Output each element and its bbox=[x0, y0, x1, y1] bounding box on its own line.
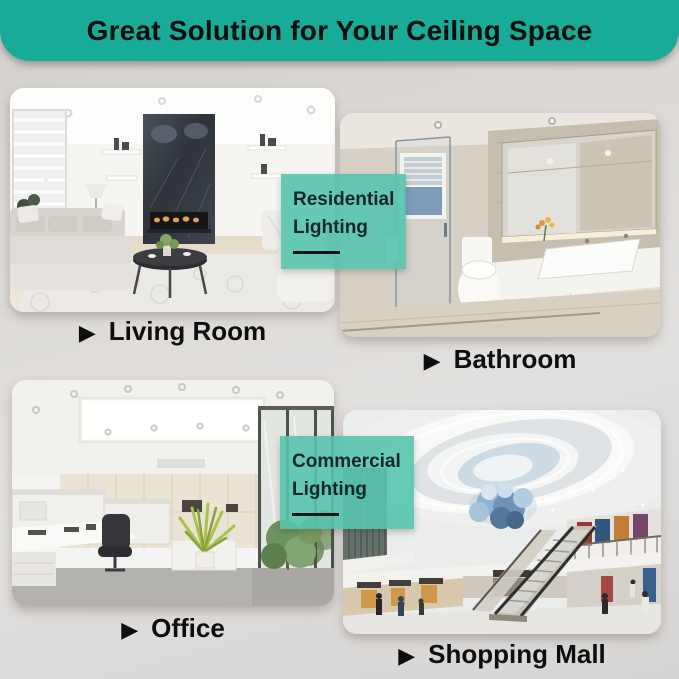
arrow-icon: ▶ bbox=[424, 350, 441, 372]
arrow-icon: ▶ bbox=[79, 322, 96, 344]
badge-text-line2: Lighting bbox=[293, 214, 406, 242]
arrow-icon: ▶ bbox=[121, 619, 138, 641]
fireplace-wall bbox=[143, 114, 215, 244]
residential-lighting-badge: Residential Lighting bbox=[281, 174, 406, 269]
badge-text-line1: Commercial bbox=[292, 448, 414, 476]
badge-underline bbox=[292, 513, 339, 516]
page-title: Great Solution for Your Ceiling Space bbox=[87, 15, 593, 47]
arrow-icon: ▶ bbox=[398, 645, 415, 667]
bathroom-caption: ▶ Bathroom bbox=[340, 344, 660, 375]
commercial-lighting-badge: Commercial Lighting bbox=[280, 436, 414, 529]
badge-underline bbox=[293, 251, 340, 254]
living-room-caption: ▶ Living Room bbox=[10, 316, 335, 347]
caption-text: Shopping Mall bbox=[428, 639, 606, 670]
badge-text-line1: Residential bbox=[293, 186, 406, 214]
caption-text: Bathroom bbox=[454, 344, 577, 375]
mirror bbox=[502, 130, 656, 243]
header-banner: Great Solution for Your Ceiling Space bbox=[0, 0, 679, 61]
badge-text-line2: Lighting bbox=[292, 476, 414, 504]
bathroom-window bbox=[400, 153, 446, 219]
sofa-left bbox=[10, 203, 140, 290]
office-caption: ▶ Office bbox=[12, 613, 334, 644]
product-infographic: Great Solution for Your Ceiling Space bbox=[0, 0, 679, 679]
caption-text: Living Room bbox=[109, 316, 266, 347]
caption-text: Office bbox=[151, 613, 225, 644]
shopping-mall-caption: ▶ Shopping Mall bbox=[343, 639, 661, 670]
